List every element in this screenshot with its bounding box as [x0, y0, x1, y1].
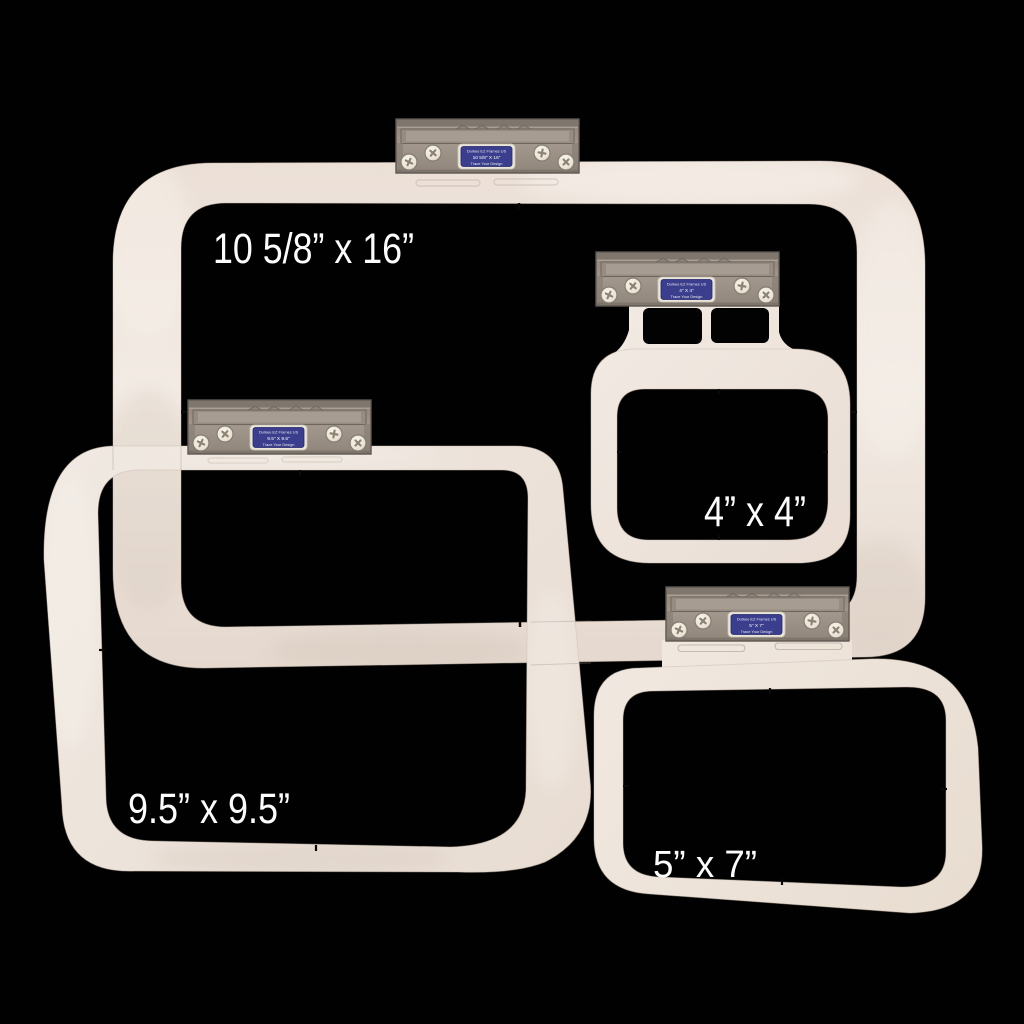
- svg-text:4” x 4”: 4” x 4”: [704, 488, 806, 536]
- svg-text:4” X 4”: 4” X 4”: [679, 288, 694, 294]
- svg-text:9.5” X 9.5”: 9.5” X 9.5”: [267, 436, 290, 442]
- svg-text:10 5/8” x 16”: 10 5/8” x 16”: [213, 225, 414, 273]
- svg-text:5” x 7”: 5” x 7”: [653, 844, 757, 886]
- svg-text:9.5” x 9.5”: 9.5” x 9.5”: [128, 785, 290, 833]
- svg-text:5” X 7”: 5” X 7”: [749, 623, 764, 629]
- svg-text:10 5/8” X 16”: 10 5/8” X 16”: [473, 155, 501, 161]
